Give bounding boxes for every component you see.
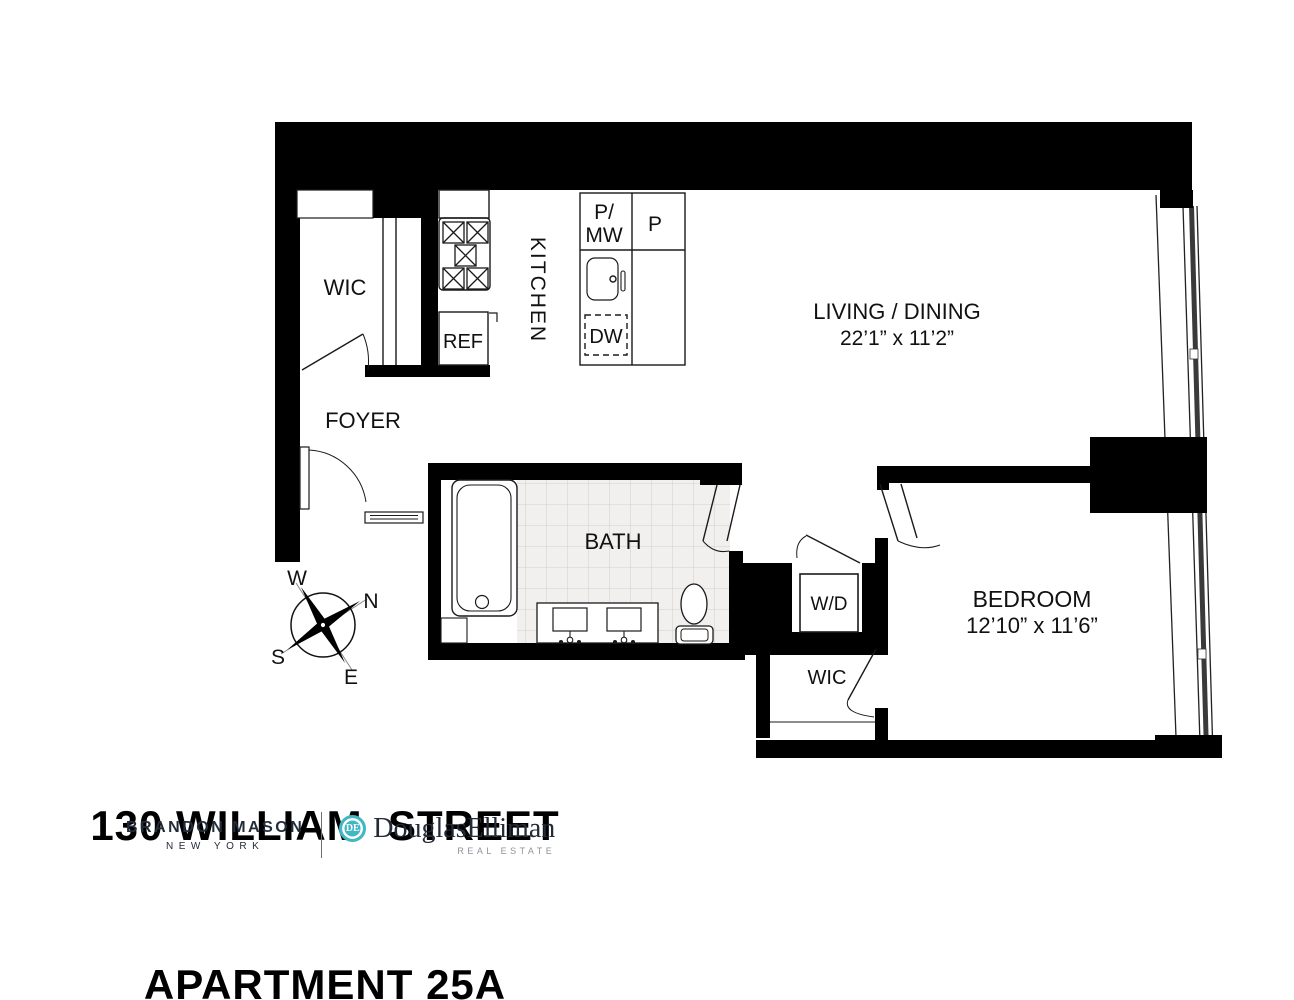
column bbox=[1090, 437, 1207, 513]
compass: W N S E bbox=[271, 567, 379, 689]
bedroom-door-arc bbox=[898, 541, 940, 548]
compass-south: S bbox=[271, 646, 285, 669]
compass-west: W bbox=[287, 567, 307, 590]
entry-door-leaf bbox=[300, 447, 309, 509]
wall-wic-niche-side bbox=[373, 190, 421, 218]
brokerage-name: DouglasElliman bbox=[373, 815, 555, 843]
wall-wic-kitchen-divider bbox=[421, 190, 438, 377]
wall-bath-top-right bbox=[700, 463, 742, 485]
window-mullion bbox=[1198, 649, 1206, 659]
wall-bedroom-left-mid bbox=[875, 538, 888, 650]
kitchen-sink bbox=[587, 258, 618, 300]
wall-left bbox=[275, 122, 300, 562]
agent-logo: BRANDON MASON NEW YORK bbox=[126, 819, 304, 852]
bedroom-dims: 12’10” x 11’6” bbox=[966, 613, 1098, 638]
wall-top bbox=[275, 122, 1192, 190]
brokerage-logo: DE DouglasElliman REAL ESTATE bbox=[339, 815, 555, 856]
compass-north: N bbox=[363, 590, 378, 613]
toilet-bowl bbox=[681, 584, 707, 624]
living-label: LIVING / DINING bbox=[813, 299, 980, 324]
brand-divider bbox=[321, 812, 322, 858]
entry-door-arc bbox=[309, 450, 366, 502]
wall-hall-block bbox=[743, 563, 792, 655]
compass-hub bbox=[320, 622, 325, 627]
fridge-label: REF bbox=[443, 331, 483, 353]
brokerage-monogram-icon: DE bbox=[339, 815, 366, 842]
kitchen-cabinet bbox=[439, 190, 489, 218]
wall-kitchen-bottom bbox=[365, 365, 490, 377]
wall-bottom bbox=[756, 740, 1163, 758]
pantry-mw-label-1: P/ bbox=[594, 201, 614, 224]
wall-bedroom-left-low bbox=[875, 708, 888, 740]
bedroom-door-leaf bbox=[901, 484, 917, 538]
stove-burners bbox=[443, 222, 488, 289]
wall-top-right-step bbox=[1160, 190, 1193, 208]
wall-wic2-left bbox=[756, 655, 770, 738]
wic-door-arc bbox=[363, 334, 369, 370]
laundry-label: W/D bbox=[811, 594, 848, 615]
wic2-door-leaf bbox=[848, 649, 876, 700]
agent-city: NEW YORK bbox=[126, 841, 304, 852]
kitchen-label: KITCHEN bbox=[526, 237, 549, 343]
wall-living-bedroom bbox=[877, 466, 1090, 483]
floor-plan-page: W N S E WIC KITCHEN FOYER LIVING / DININ… bbox=[0, 0, 1294, 1000]
window-mullion bbox=[1190, 349, 1198, 359]
sink-handle bbox=[621, 271, 625, 291]
laundry-door-arc bbox=[797, 536, 806, 558]
bedroom-label: BEDROOM bbox=[973, 586, 1092, 612]
wic-bottom-label: WIC bbox=[808, 667, 847, 689]
branding-row: BRANDON MASON NEW YORK DE DouglasElliman… bbox=[126, 812, 555, 858]
brokerage-logo-row: DE DouglasElliman bbox=[339, 815, 555, 843]
laundry-door-leaf bbox=[806, 535, 860, 563]
living-dims: 22’1” x 11’2” bbox=[840, 327, 954, 350]
pantry-label: P bbox=[648, 213, 662, 236]
foyer-label: FOYER bbox=[325, 408, 401, 433]
wall-bath-bottom bbox=[428, 643, 745, 660]
bath-step bbox=[441, 618, 467, 643]
sink-faucet bbox=[610, 276, 616, 282]
wall-bath-top bbox=[428, 463, 742, 480]
plan-title-line2: APARTMENT 25A bbox=[55, 958, 595, 1000]
entry-saddle bbox=[365, 512, 423, 523]
wic-door-leaf bbox=[302, 334, 363, 370]
dishwasher-label: DW bbox=[589, 326, 622, 348]
fridge-handle bbox=[489, 313, 497, 322]
wall-bath-right bbox=[729, 551, 743, 660]
wic2-door-arc bbox=[847, 700, 874, 717]
bedroom-door-leaf bbox=[880, 484, 898, 541]
pantry-mw-label-2: MW bbox=[585, 224, 622, 247]
agent-name: BRANDON MASON bbox=[126, 819, 304, 837]
vanity bbox=[537, 603, 658, 643]
walls bbox=[275, 122, 1222, 758]
wall-bottom-right-step bbox=[1155, 735, 1222, 758]
brokerage-tagline: REAL ESTATE bbox=[339, 846, 555, 856]
wall-laundry-bottom bbox=[792, 632, 862, 655]
wall-bath-left bbox=[428, 463, 441, 660]
bath-label: BATH bbox=[584, 529, 641, 554]
wic-top-label: WIC bbox=[324, 275, 367, 300]
wic-niche bbox=[297, 190, 373, 218]
compass-east: E bbox=[344, 666, 358, 689]
